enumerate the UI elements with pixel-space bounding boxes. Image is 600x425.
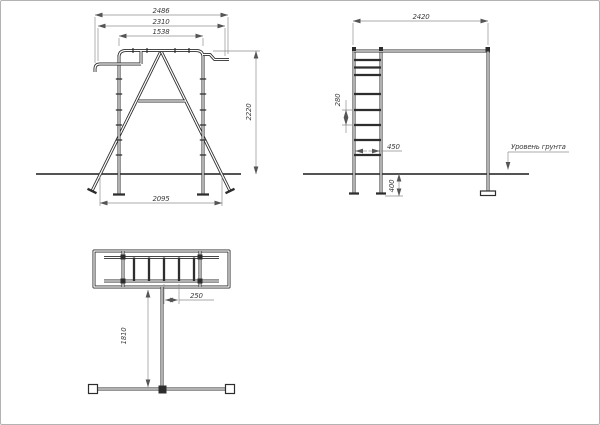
a-frame-feet [88,189,235,193]
plan-foot-left [89,385,98,394]
ladder-rungs [354,60,381,155]
technical-drawing: 2486 2310 1538 2220 2095 2420 280 450 40… [1,1,600,425]
plan-rungs [134,258,194,282]
dim-stem-length-label: 1810 [120,327,128,345]
front-view [88,48,235,195]
clamp-ladder-left [352,47,356,51]
plan-foot-right [226,385,235,394]
drawing-sheet: 2486 2310 1538 2220 2095 2420 280 450 40… [0,0,600,425]
leg-foot-plate [481,191,496,196]
plan-center-clamp [159,386,167,394]
side-view [349,47,496,196]
dim-upper-width-label: 2310 [152,18,170,26]
side-view-dimensions: 2420 280 450 400 Уровень грунта [334,13,569,196]
dim-bar-width-label: 1538 [152,28,170,36]
plan-clamp-bl [121,279,126,284]
plan-clamp-tr [198,255,203,260]
dim-overall-width-label: 2486 [152,7,170,15]
dim-plan-rung-spacing-label: 250 [190,292,204,300]
dim-ladder-width-label: 450 [387,143,401,151]
dim-embed-depth-label: 400 [388,179,396,193]
ground-level-label: Уровень грунта [511,143,566,151]
dim-height-label: 2220 [245,103,253,121]
dim-leg-span-label: 2095 [152,195,170,203]
plan-clamp-tl [121,255,126,260]
dim-rung-spacing-label: 280 [334,93,342,107]
plan-clamp-br [198,279,203,284]
plan-view-dimensions: 250 1810 [120,284,214,387]
dim-side-width-label: 2420 [412,13,430,21]
plan-ladder-rails [104,258,219,282]
clamp-ladder-right [379,47,383,51]
clamp-corner [486,47,491,52]
plan-view [89,251,235,394]
